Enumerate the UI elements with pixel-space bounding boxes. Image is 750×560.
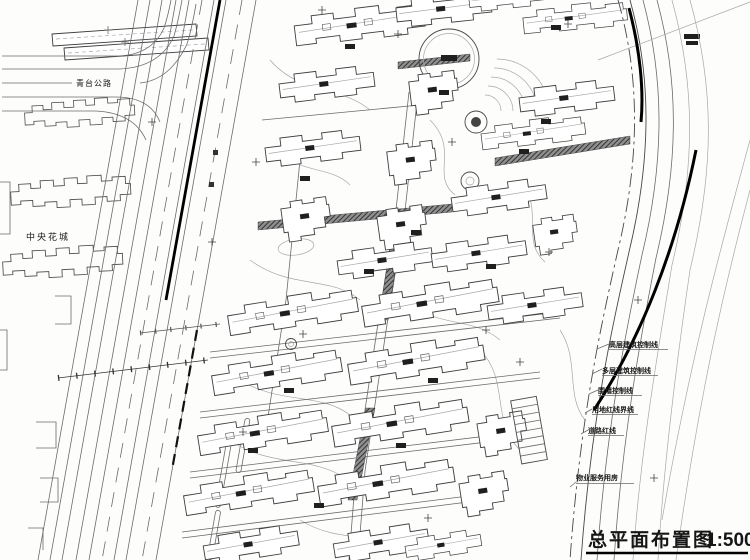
legend-item-0: 高层建筑控制线 — [609, 340, 658, 349]
legend-item-1: 多层建筑控制线 — [602, 366, 651, 375]
top-left-road-label: 青台公路 — [76, 78, 112, 88]
parking-stalls — [511, 396, 548, 464]
fountain-circle — [286, 339, 297, 350]
legend-item-2: 围墙控制线 — [598, 386, 633, 395]
title-scale: 1:500 — [706, 530, 750, 551]
legend-item-3: 用地红线界线 — [592, 405, 634, 414]
site-plan-canvas: 中央花城 青台公路 — [0, 0, 750, 560]
title-text: 总平面布置图 — [588, 528, 714, 551]
top-left-road: 青台公路 — [2, 0, 196, 140]
left-arterial-road — [38, 0, 256, 560]
building-number-tags — [248, 25, 700, 508]
west-neighborhood-label: 中央花城 — [26, 231, 70, 242]
drawing-title: 总平面布置图 1:500 — [586, 528, 750, 553]
boundary-heavy-arc-north — [629, 8, 642, 122]
service-building-label: 物业服务用房 — [576, 473, 618, 482]
legend-item-4: 道路红线 — [588, 426, 616, 435]
legend: 高层建筑控制线 多层建筑控制线 围墙控制线 用地红线界线 道路红线 物业服务用房 — [570, 340, 668, 487]
parcel-buildings — [182, 0, 628, 560]
west-neighborhood-label-group: 中央花城 — [26, 231, 70, 242]
